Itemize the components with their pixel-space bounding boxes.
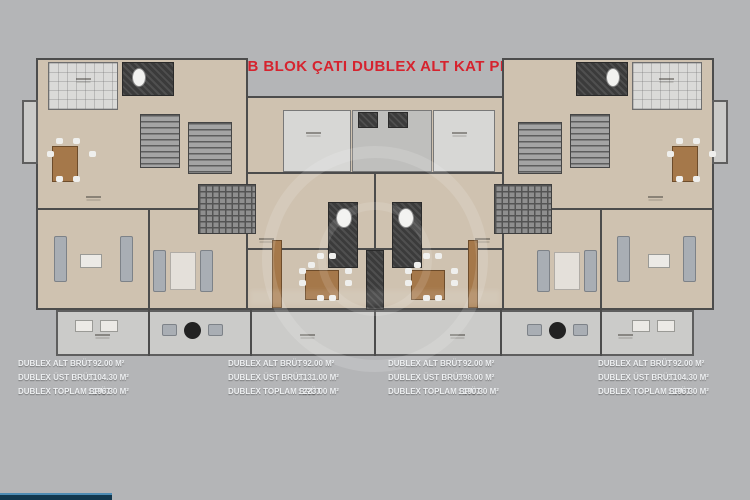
measurement-row: DUBLEX ALT BRÜT: 92.00 M² bbox=[18, 357, 203, 371]
technical-room-right bbox=[433, 110, 495, 172]
measurement-label: DUBLEX ALT BRÜT bbox=[388, 357, 458, 371]
wall bbox=[148, 208, 150, 310]
rug bbox=[554, 252, 580, 290]
sofa bbox=[153, 250, 166, 292]
measurement-row: DUBLEX ÜST BRÜT: 98.00 M² bbox=[388, 371, 573, 385]
bathroom-left bbox=[122, 62, 174, 96]
chair-set bbox=[676, 138, 683, 144]
terrace-divider bbox=[148, 310, 150, 356]
measurement-block-unit1: DUBLEX ALT BRÜT: 92.00 M² DUBLEX ÜST BRÜ… bbox=[18, 357, 203, 399]
left-balcony bbox=[22, 100, 38, 164]
coffee-table bbox=[80, 254, 102, 268]
lounger bbox=[100, 320, 118, 332]
dining-table bbox=[52, 146, 78, 182]
room-label-smudge bbox=[452, 132, 467, 134]
bathroom-right bbox=[576, 62, 628, 96]
round-table bbox=[184, 322, 201, 339]
room-label-smudge bbox=[86, 196, 101, 198]
stairwell bbox=[518, 122, 562, 174]
terrace-chair bbox=[573, 324, 588, 336]
measurement-value: : 92.00 M² bbox=[88, 357, 124, 371]
measurement-label: DUBLEX ÜST BRÜT bbox=[228, 371, 298, 385]
kitchen-left bbox=[48, 62, 118, 110]
room-label-smudge bbox=[306, 132, 321, 134]
stairwell bbox=[570, 114, 610, 168]
measurement-value: : 104.30 M² bbox=[668, 371, 709, 385]
room-label-smudge bbox=[648, 196, 663, 198]
measurement-value: : 196.30 M² bbox=[88, 385, 129, 399]
measurement-row: DUBLEX ÜST BRÜT: 104.30 M² bbox=[18, 371, 203, 385]
terrace-divider bbox=[600, 310, 602, 356]
chair-set bbox=[56, 138, 63, 144]
room-label-smudge bbox=[618, 334, 633, 336]
measurement-row: DUBLEX TOPLAM BRÜT: 196.30 M² bbox=[18, 385, 203, 399]
measurement-value: : 196.30 M² bbox=[668, 385, 709, 399]
sofa bbox=[683, 236, 696, 282]
sofa bbox=[54, 236, 67, 282]
measurement-row: DUBLEX ÜST BRÜT: 131.00 M² bbox=[228, 371, 413, 385]
measurement-value: : 131.00 M² bbox=[298, 371, 339, 385]
measurement-block-unit2: DUBLEX ALT BRÜT: 92.00 M² DUBLEX ÜST BRÜ… bbox=[228, 357, 413, 399]
duplex-stairs-right bbox=[494, 184, 552, 234]
measurement-row: DUBLEX ALT BRÜT: 92.00 M² bbox=[388, 357, 573, 371]
lounger bbox=[632, 320, 650, 332]
terrace-chair bbox=[527, 324, 542, 336]
room-label-smudge bbox=[76, 78, 91, 80]
stairwell bbox=[188, 122, 232, 174]
sofa bbox=[537, 250, 550, 292]
sofa bbox=[617, 236, 630, 282]
measurement-value: : 92.00 M² bbox=[458, 357, 494, 371]
lounger bbox=[75, 320, 93, 332]
video-progress-bar[interactable] bbox=[0, 493, 112, 500]
toilet bbox=[606, 68, 620, 87]
measurement-value: : 98.00 M² bbox=[458, 371, 494, 385]
measurement-label: DUBLEX ALT BRÜT bbox=[18, 357, 88, 371]
terrace-chair bbox=[162, 324, 177, 336]
measurement-label: DUBLEX TOPLAM BRÜT bbox=[228, 385, 298, 399]
sofa bbox=[584, 250, 597, 292]
watermark-wordmark bbox=[250, 290, 500, 305]
room-label-smudge bbox=[95, 334, 110, 336]
measurement-label: DUBLEX TOPLAM BRÜT bbox=[388, 385, 458, 399]
measurement-value: : 190.30 M² bbox=[458, 385, 499, 399]
measurement-value: : 223.00 M² bbox=[298, 385, 339, 399]
terrace-divider bbox=[500, 310, 502, 356]
measurement-label: DUBLEX TOPLAM BRÜT bbox=[18, 385, 88, 399]
measurement-label: DUBLEX TOPLAM BRÜT bbox=[598, 385, 668, 399]
round-table bbox=[549, 322, 566, 339]
elevator-shaft bbox=[388, 112, 408, 128]
toilet bbox=[132, 68, 146, 87]
measurement-label: DUBLEX ALT BRÜT bbox=[228, 357, 298, 371]
measurement-row: DUBLEX TOPLAM BRÜT: 190.30 M² bbox=[388, 385, 573, 399]
measurement-row: DUBLEX ALT BRÜT: 92.00 M² bbox=[598, 357, 750, 371]
wall bbox=[600, 208, 602, 310]
terrace-chair bbox=[208, 324, 223, 336]
lounger bbox=[657, 320, 675, 332]
sofa bbox=[200, 250, 213, 292]
measurement-value: : 92.00 M² bbox=[298, 357, 334, 371]
coffee-table bbox=[648, 254, 670, 268]
measurement-label: DUBLEX ÜST BRÜT bbox=[598, 371, 668, 385]
duplex-stairs-left bbox=[198, 184, 256, 234]
dining-table bbox=[672, 146, 698, 182]
right-balcony bbox=[712, 100, 728, 164]
floor-plan-page: B BLOK ÇATI DUBLEX ALT KAT PLANI bbox=[0, 0, 750, 500]
terrace-divider bbox=[250, 310, 252, 356]
measurement-value: : 92.00 M² bbox=[668, 357, 704, 371]
measurement-block-unit3: DUBLEX ALT BRÜT: 92.00 M² DUBLEX ÜST BRÜ… bbox=[388, 357, 573, 399]
elevator-shaft bbox=[358, 112, 378, 128]
measurement-row: DUBLEX TOPLAM BRÜT: 196.30 M² bbox=[598, 385, 750, 399]
stairwell bbox=[140, 114, 180, 168]
kitchen-right bbox=[632, 62, 702, 110]
measurement-row: DUBLEX ALT BRÜT: 92.00 M² bbox=[228, 357, 413, 371]
rug bbox=[170, 252, 196, 290]
measurement-label: DUBLEX ÜST BRÜT bbox=[18, 371, 88, 385]
measurement-row: DUBLEX ÜST BRÜT: 104.30 M² bbox=[598, 371, 750, 385]
measurement-label: DUBLEX ÜST BRÜT bbox=[388, 371, 458, 385]
room-label-smudge bbox=[659, 78, 674, 80]
measurement-value: : 104.30 M² bbox=[88, 371, 129, 385]
measurement-block-unit4: DUBLEX ALT BRÜT: 92.00 M² DUBLEX ÜST BRÜ… bbox=[598, 357, 750, 399]
measurement-row: DUBLEX TOPLAM BRÜT: 223.00 M² bbox=[228, 385, 413, 399]
measurement-label: DUBLEX ALT BRÜT bbox=[598, 357, 668, 371]
sofa bbox=[120, 236, 133, 282]
